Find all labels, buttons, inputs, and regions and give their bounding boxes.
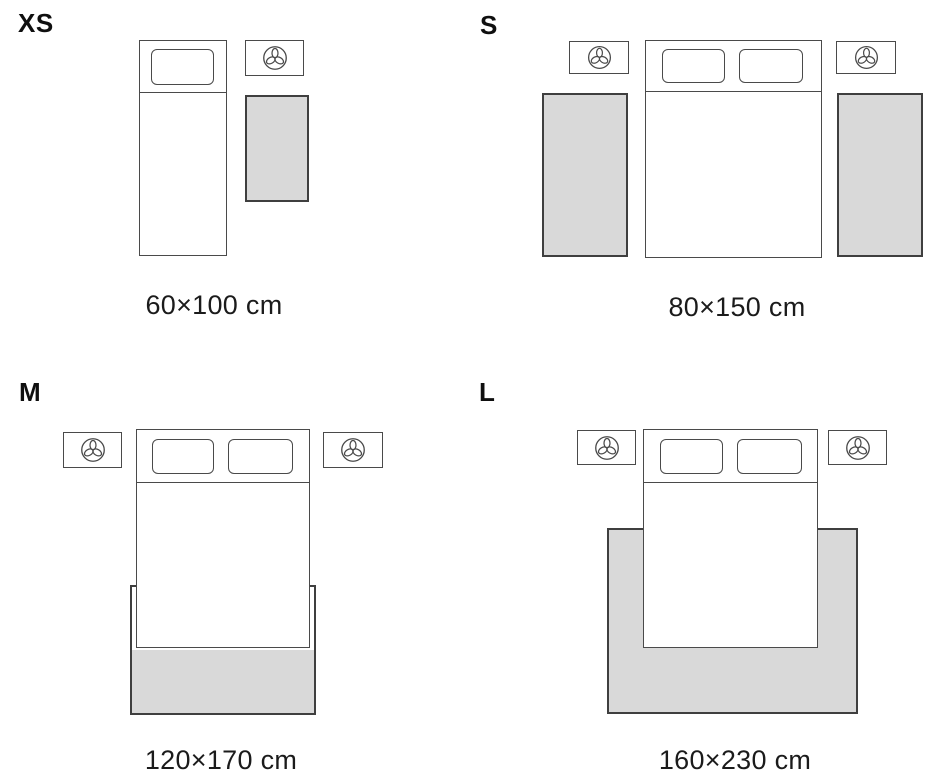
bed-headboard — [137, 430, 309, 483]
nightstand-left — [577, 430, 636, 465]
pillow-right — [739, 49, 803, 83]
bed-headboard — [644, 430, 817, 483]
rug-60x100 — [245, 95, 309, 202]
plant-icon — [78, 435, 108, 465]
nightstand-left — [569, 41, 629, 74]
dimension-label-l: 160×230 cm — [605, 746, 865, 776]
single-bed — [139, 40, 227, 256]
bed-headboard — [140, 41, 226, 93]
pillow-left — [662, 49, 725, 83]
rug-80x150-left — [542, 93, 628, 257]
size-label-l: L — [479, 379, 495, 405]
bed-headboard — [646, 41, 821, 92]
nightstand-left — [63, 432, 122, 468]
plant-icon — [338, 435, 368, 465]
pillow-right — [737, 439, 802, 474]
pillow-left — [660, 439, 723, 474]
rug-exposed-area — [132, 650, 314, 713]
plant-icon — [592, 433, 622, 463]
pillow-left — [152, 439, 214, 474]
nightstand-right — [828, 430, 887, 465]
double-bed — [643, 429, 818, 648]
plant-icon — [585, 43, 614, 72]
double-bed — [645, 40, 822, 258]
pillow — [151, 49, 214, 85]
plant-icon — [852, 43, 881, 72]
pillow-right — [228, 439, 293, 474]
double-bed — [136, 429, 310, 648]
nightstand — [245, 40, 304, 76]
plant-icon — [260, 43, 290, 73]
plant-icon — [843, 433, 873, 463]
nightstand-right — [323, 432, 383, 468]
rug-80x150-right — [837, 93, 923, 257]
rug-size-guide: XS 60×100 cm S — [0, 0, 940, 780]
nightstand-right — [836, 41, 896, 74]
